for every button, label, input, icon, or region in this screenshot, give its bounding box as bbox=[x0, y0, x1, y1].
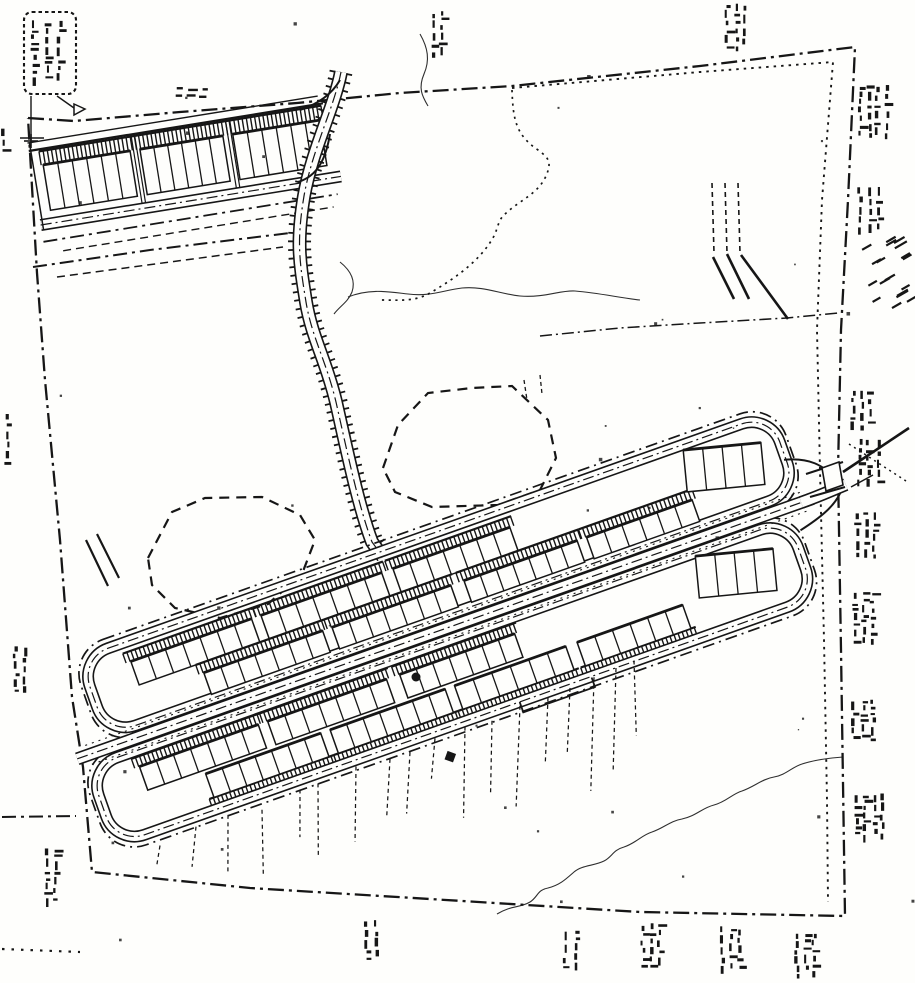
building-cluster bbox=[683, 443, 765, 492]
scan-speckle bbox=[228, 734, 230, 736]
scanned-site-plan-page bbox=[0, 0, 915, 983]
scan-speckle bbox=[557, 107, 559, 109]
scan-speckle bbox=[291, 504, 293, 506]
scan-speckle bbox=[504, 806, 507, 809]
scan-speckle bbox=[654, 322, 657, 325]
scan-speckle bbox=[537, 830, 539, 832]
scan-speckle bbox=[817, 815, 820, 818]
manhole-dot bbox=[412, 673, 421, 682]
scan-speckle bbox=[294, 22, 297, 25]
scan-speckle bbox=[605, 425, 607, 427]
scan-speckle bbox=[699, 407, 701, 409]
scan-speckle bbox=[262, 155, 265, 158]
scan-speckle bbox=[662, 319, 664, 321]
scan-speckle bbox=[123, 770, 126, 773]
scan-speckle bbox=[128, 607, 131, 610]
scan-speckle bbox=[217, 606, 220, 609]
scan-speckle bbox=[798, 729, 799, 730]
scan-speckle bbox=[821, 140, 823, 142]
scan-speckle bbox=[185, 97, 187, 99]
scan-speckle bbox=[78, 201, 81, 204]
scan-speckle bbox=[794, 264, 796, 266]
scan-speckle bbox=[733, 428, 734, 429]
scan-speckle bbox=[847, 312, 851, 316]
scan-speckle bbox=[648, 507, 650, 509]
scan-speckle bbox=[560, 900, 563, 903]
scan-speckle bbox=[587, 509, 589, 511]
scan-speckle bbox=[60, 395, 62, 397]
scan-speckle bbox=[802, 718, 804, 720]
scan-speckle bbox=[599, 458, 602, 461]
scan-speckle bbox=[587, 75, 591, 79]
scan-speckle bbox=[911, 900, 914, 903]
scan-speckle bbox=[475, 725, 477, 727]
scan-speckle bbox=[112, 842, 115, 845]
scan-speckle bbox=[857, 608, 859, 610]
scan-speckle bbox=[186, 131, 189, 134]
site-plan-drawing bbox=[0, 0, 915, 983]
scan-speckle bbox=[682, 875, 684, 877]
scan-speckle bbox=[221, 848, 224, 851]
scan-speckle bbox=[716, 536, 720, 540]
building-cluster bbox=[695, 549, 777, 598]
scan-speckle bbox=[119, 939, 122, 942]
scan-speckle bbox=[611, 811, 614, 814]
scan-speckle bbox=[329, 625, 330, 626]
